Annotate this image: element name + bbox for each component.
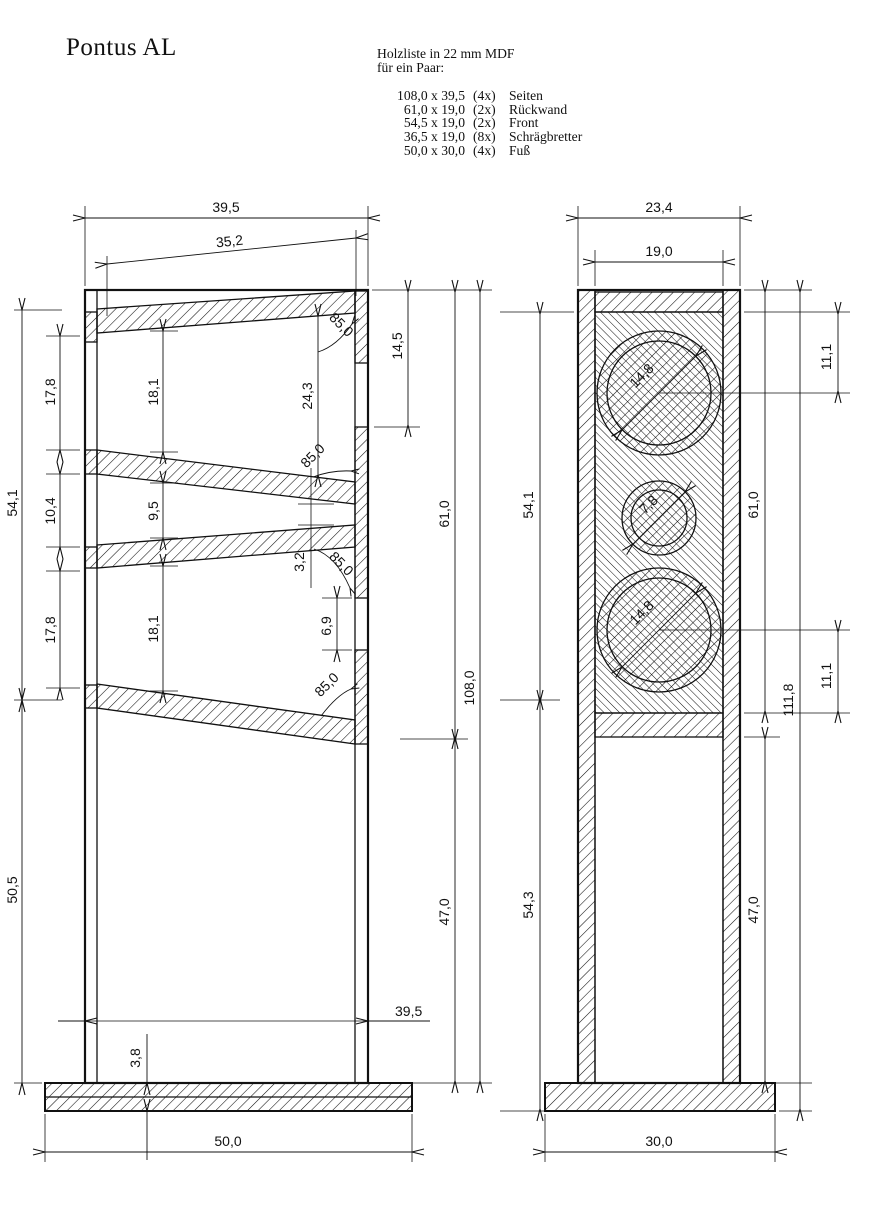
dim-chamber-mid: 9,5 [145, 501, 161, 521]
front-wall-block [85, 450, 97, 474]
front-foot-plate [545, 1083, 775, 1111]
side-dimension-labels: 39,5 35,2 54,1 50,5 17,8 10,4 17,8 18,1 … [4, 199, 477, 1149]
dim-overall-width: 39,5 [212, 199, 239, 215]
dim-left-upper: 54,1 [520, 491, 536, 518]
dim-inner-width: 19,0 [645, 243, 672, 259]
dim-top-driver-offset: 11,1 [818, 344, 834, 370]
dim-rear-lower: 47,0 [436, 898, 452, 925]
dim-inner-width-bottom: 39,5 [395, 1003, 422, 1019]
slanted-board-1 [97, 291, 355, 333]
dim-top-port: 14,5 [389, 332, 405, 359]
dim-total-height: 108,0 [461, 670, 477, 705]
top-panel [595, 292, 723, 312]
dim-overall-width: 23,4 [645, 199, 672, 215]
slanted-board-3 [97, 525, 355, 568]
angle-label: 85,0 [326, 548, 357, 579]
dim-right-upper: 61,0 [745, 491, 761, 518]
dim-front-seg-bot: 17,8 [42, 616, 58, 643]
front-wall-block [85, 685, 97, 708]
shelf-panel [595, 713, 723, 737]
dim-bottom-driver-offset: 11,1 [818, 663, 834, 689]
rear-wall-block [355, 291, 368, 363]
dim-left-lower: 54,3 [520, 891, 536, 918]
dim-right-lower: 47,0 [745, 896, 761, 923]
technical-drawing: 85,0 85,0 85,0 85,0 39,5 35,2 54,1 50,5 … [0, 0, 870, 1224]
side-hatched-panels [45, 291, 412, 1111]
front-wall-block [85, 547, 97, 568]
dim-chamber-top-rear: 24,3 [299, 382, 315, 409]
right-side-wall [723, 290, 740, 1083]
rear-wall-block [355, 650, 368, 744]
drawing-sheet: Pontus AL Holzliste in 22 mm MDF für ein… [0, 0, 870, 1224]
dim-left-upper: 54,1 [4, 489, 20, 516]
dim-front-seg-top: 17,8 [42, 378, 58, 405]
rear-wall-block [355, 427, 368, 598]
side-section-view: 85,0 85,0 85,0 85,0 39,5 35,2 54,1 50,5 … [4, 199, 492, 1162]
left-side-wall [578, 290, 595, 1083]
dim-rear-gap: 3,2 [291, 552, 307, 572]
dim-baffle-length: 35,2 [215, 232, 244, 251]
dim-foot-width: 30,0 [645, 1133, 672, 1149]
dim-total-height: 111,8 [780, 683, 796, 716]
dim-rear-upper: 61,0 [436, 500, 452, 527]
dim-left-lower: 50,5 [4, 876, 20, 903]
dim-front-seg-mid: 10,4 [42, 497, 58, 524]
dim-chamber-bot: 18,1 [145, 615, 161, 642]
front-wall-block [85, 312, 97, 342]
dim-foot-width: 50,0 [214, 1133, 241, 1149]
dim-foot-thickness: 3,8 [127, 1048, 143, 1068]
dim-chamber-top: 18,1 [145, 378, 161, 405]
dim-rear-port: 6,9 [318, 616, 334, 636]
angle-label: 85,0 [297, 440, 328, 471]
front-section-view: 23,4 19,0 54,1 54,3 61,0 111,8 47,0 11,1… [500, 199, 850, 1162]
side-angle-annotations: 85,0 85,0 85,0 85,0 [297, 309, 357, 716]
angle-label: 85,0 [311, 669, 342, 700]
